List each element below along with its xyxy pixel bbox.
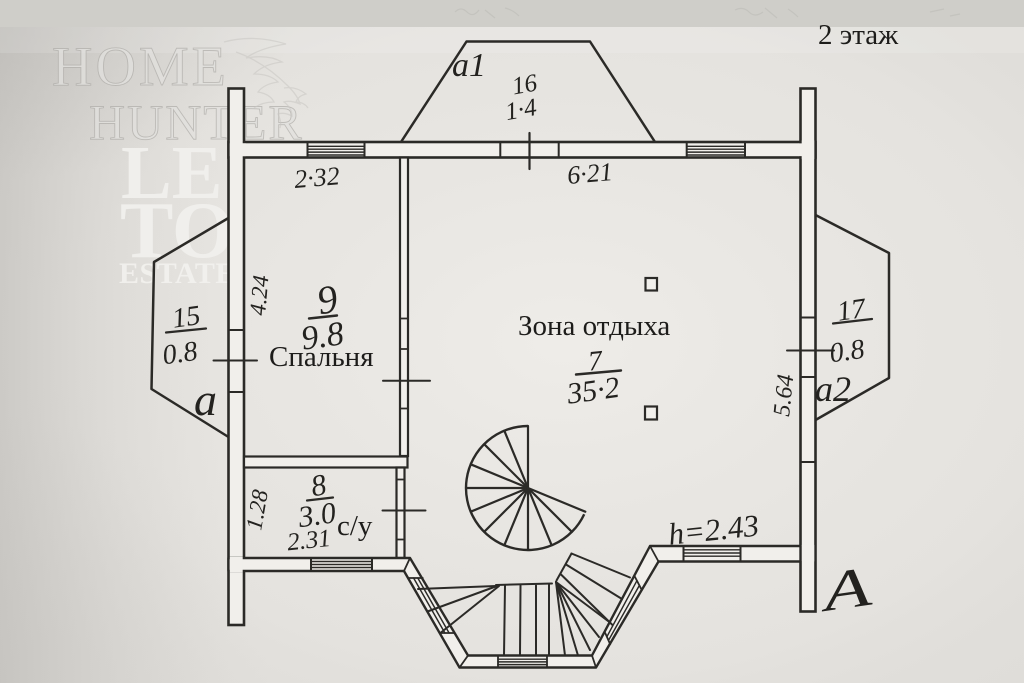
svg-text:с/у: с/у bbox=[337, 510, 373, 542]
svg-text:ESTATE: ESTATE bbox=[119, 257, 236, 290]
svg-text:2 этаж: 2 этаж bbox=[818, 19, 899, 51]
svg-text:HOME: HOME bbox=[52, 36, 229, 98]
svg-text:a: a bbox=[194, 374, 217, 425]
svg-text:a1: a1 bbox=[452, 47, 486, 84]
svg-text:1·4: 1·4 bbox=[503, 94, 538, 126]
svg-text:2.31: 2.31 bbox=[286, 525, 332, 556]
svg-text:4.24: 4.24 bbox=[245, 274, 273, 316]
svg-text:Зона отдыха: Зона отдыха bbox=[518, 310, 670, 342]
svg-text:6·21: 6·21 bbox=[566, 157, 614, 190]
svg-text:Спальня: Спальня bbox=[269, 341, 374, 373]
svg-text:0.8: 0.8 bbox=[828, 334, 867, 370]
svg-text:5.64: 5.64 bbox=[769, 373, 799, 417]
svg-text:0.8: 0.8 bbox=[161, 336, 200, 372]
svg-text:a2: a2 bbox=[815, 369, 851, 409]
svg-text:2·32: 2·32 bbox=[293, 161, 341, 194]
